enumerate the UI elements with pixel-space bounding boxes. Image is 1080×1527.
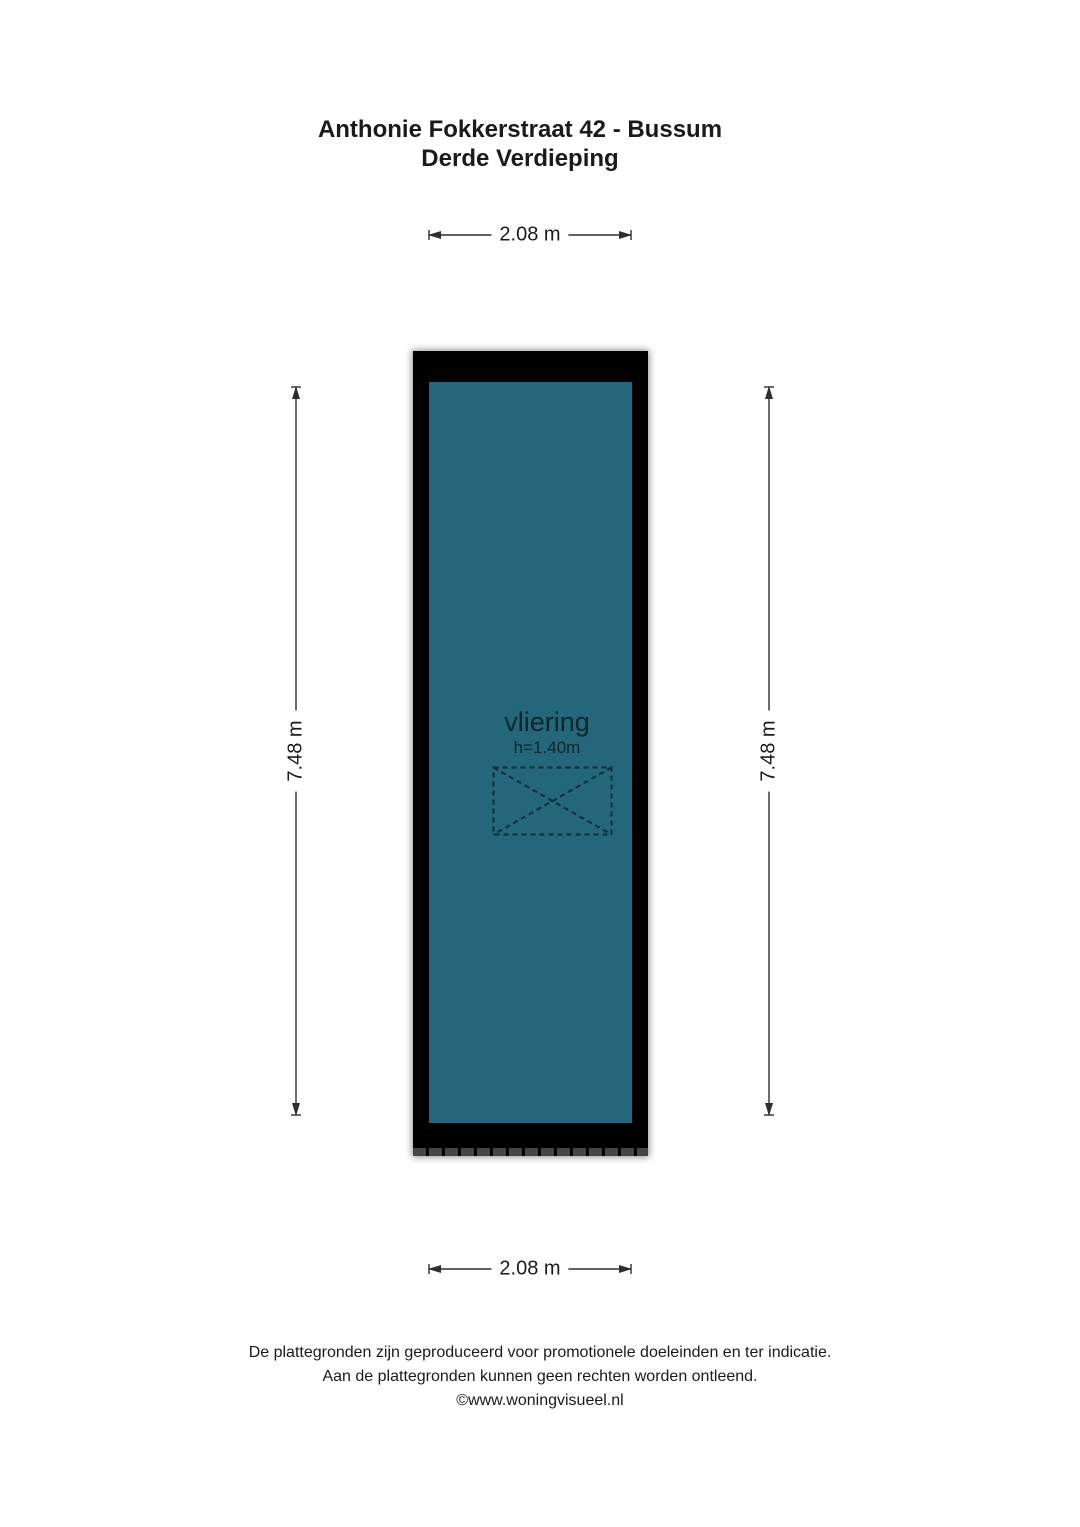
disclaimer-line-2: Aan de plattegronden kunnen geen rechten… (0, 1365, 1080, 1389)
dimension-top-width: 2.08 m (426, 225, 634, 245)
room-name-label: vliering (504, 707, 590, 738)
dimension-top-width-label: 2.08 m (491, 224, 568, 247)
page-title: Anthonie Fokkerstraat 42 - Bussum Derde … (0, 115, 1040, 173)
dimension-right-height: 7.48 m (759, 384, 779, 1118)
dimension-right-height-label: 7.48 m (758, 710, 781, 791)
dimension-left-height-label: 7.48 m (285, 710, 308, 791)
floor-opening-marker (492, 766, 613, 836)
roof-edge-hatch (413, 1148, 648, 1156)
disclaimer: De plattegronden zijn geproduceerd voor … (0, 1341, 1080, 1413)
dimension-bottom-width: 2.08 m (426, 1259, 634, 1279)
room-label: vliering h=1.40m (504, 707, 590, 758)
dimension-left-height: 7.48 m (286, 384, 306, 1118)
title-floor-name: Derde Verdieping (0, 144, 1040, 173)
room-height-label: h=1.40m (504, 738, 590, 758)
copyright-line: ©www.woningvisueel.nl (0, 1389, 1080, 1413)
title-address: Anthonie Fokkerstraat 42 - Bussum (0, 115, 1040, 144)
dimension-bottom-width-label: 2.08 m (491, 1258, 568, 1281)
disclaimer-line-1: De plattegronden zijn geproduceerd voor … (0, 1341, 1080, 1365)
